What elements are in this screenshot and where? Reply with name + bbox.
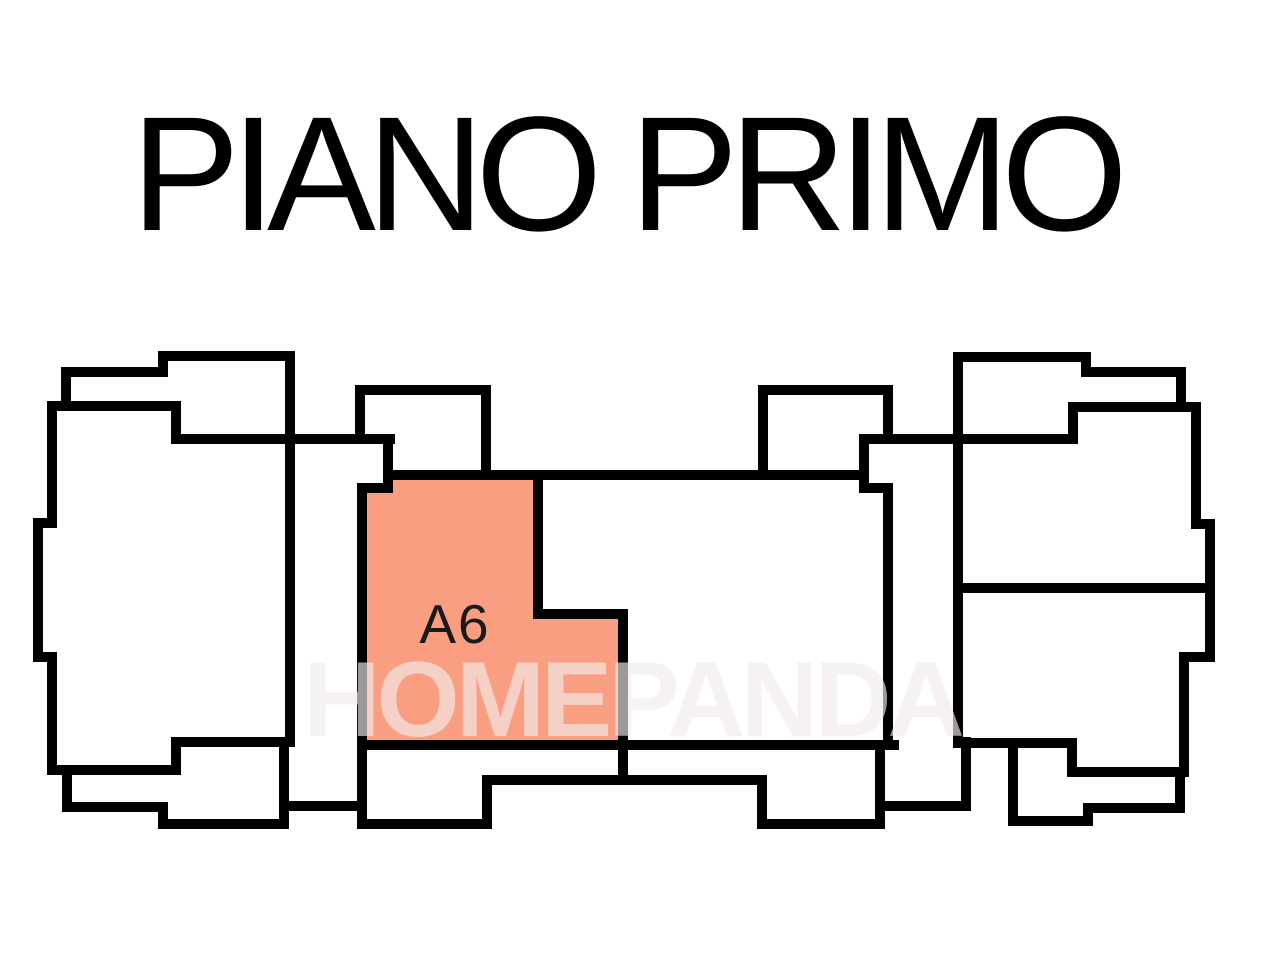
- svg-text:HOMEPANDA: HOMEPANDA: [303, 639, 962, 759]
- svg-text:PIANO PRIMO: PIANO PRIMO: [131, 82, 1120, 265]
